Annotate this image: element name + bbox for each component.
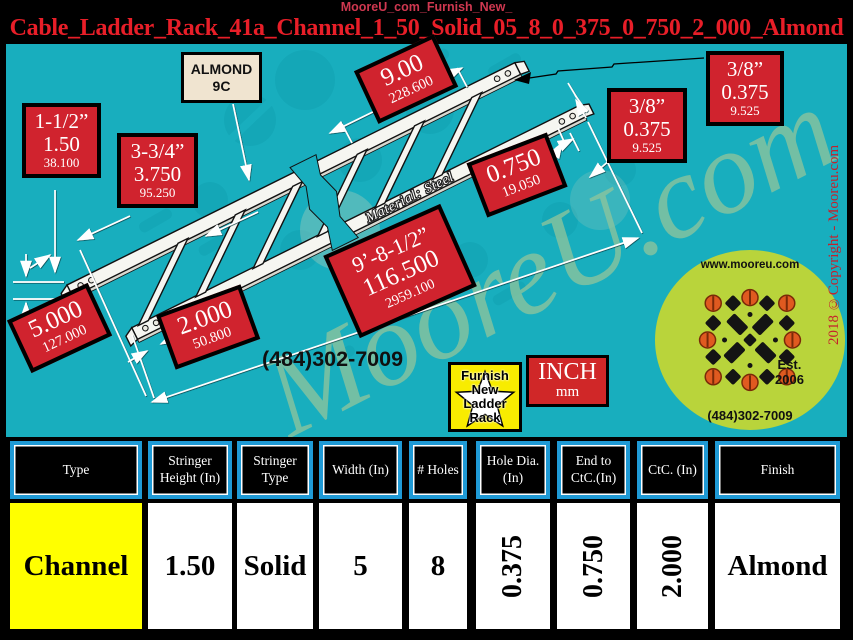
column-header: Stringer Height (In) xyxy=(148,441,232,499)
leader-line xyxy=(514,58,704,84)
column-header: Finish xyxy=(715,441,840,499)
dim-label-stringer-height: 1-1/2” 1.50 38.100 xyxy=(22,103,101,178)
cell-stringer-height: 1.50 xyxy=(148,503,232,629)
cell-stringer-type: Solid xyxy=(237,503,313,629)
column-header: CtC. (In) xyxy=(637,441,708,499)
badge-established: Est. 2006 xyxy=(775,358,804,388)
table-column-stringer-height: Stringer Height (In) 1.50 xyxy=(148,441,232,629)
badge-url: www.mooreu.com xyxy=(655,259,845,271)
finish-color-chip: ALMOND 9C xyxy=(181,52,262,103)
column-header: Type xyxy=(10,441,142,499)
dim-label-hole-diameter-a: 3/8” 0.375 9.525 xyxy=(607,88,687,163)
site-line: MooreU_com_Furnish_New_ xyxy=(0,0,853,15)
column-header: # Holes xyxy=(409,441,467,499)
furnish-new-sign: Furnish New Ladder Rack xyxy=(448,362,522,432)
cell-width: 5 xyxy=(319,503,402,629)
column-header: Hole Dia. (In) xyxy=(476,441,550,499)
table-column-hole-dia: Hole Dia. (In) 0.375 xyxy=(476,441,550,629)
dim-label-side-rail-width: 3-3/4” 3.750 95.250 xyxy=(117,133,198,208)
cell-ctc: 2.000 xyxy=(637,503,708,629)
product-spec-image: MooreU_com_Furnish_New_ Cable_Ladder_Rac… xyxy=(0,0,853,640)
cell-type: Channel xyxy=(10,503,142,629)
column-header: Stringer Type xyxy=(237,441,313,499)
table-column-stringer-type: Stringer Type Solid xyxy=(237,441,313,629)
column-header: End to CtC.(In) xyxy=(557,441,630,499)
copyright-text: 2018 ©Copyright - Mooreu.com xyxy=(826,56,848,434)
table-column-ctc: CtC. (In) 2.000 xyxy=(637,441,708,629)
table-column-width: Width (In) 5 xyxy=(319,441,402,629)
cell-holes: 8 xyxy=(409,503,467,629)
phone-number: (484)302-7009 xyxy=(262,347,403,372)
units-box: INCH mm xyxy=(526,355,609,407)
cell-finish: Almond xyxy=(715,503,840,629)
brand-badge: www.mooreu.com xyxy=(655,250,845,430)
dim-label-hole-diameter-b: 3/8” 0.375 9.525 xyxy=(706,51,784,126)
badge-phone: (484)302-7009 xyxy=(655,408,845,423)
cell-hole-dia: 0.375 xyxy=(476,503,550,629)
column-header: Width (In) xyxy=(319,441,402,499)
cell-end-to-ctc: 0.750 xyxy=(557,503,630,629)
table-column-holes: # Holes 8 xyxy=(409,441,467,629)
table-column-type: Type Channel xyxy=(10,441,142,629)
table-column-end-to-ctc: End to CtC.(In) 0.750 xyxy=(557,441,630,629)
table-column-finish: Finish Almond xyxy=(715,441,840,629)
diagram-canvas: MooreU.com xyxy=(6,44,847,437)
